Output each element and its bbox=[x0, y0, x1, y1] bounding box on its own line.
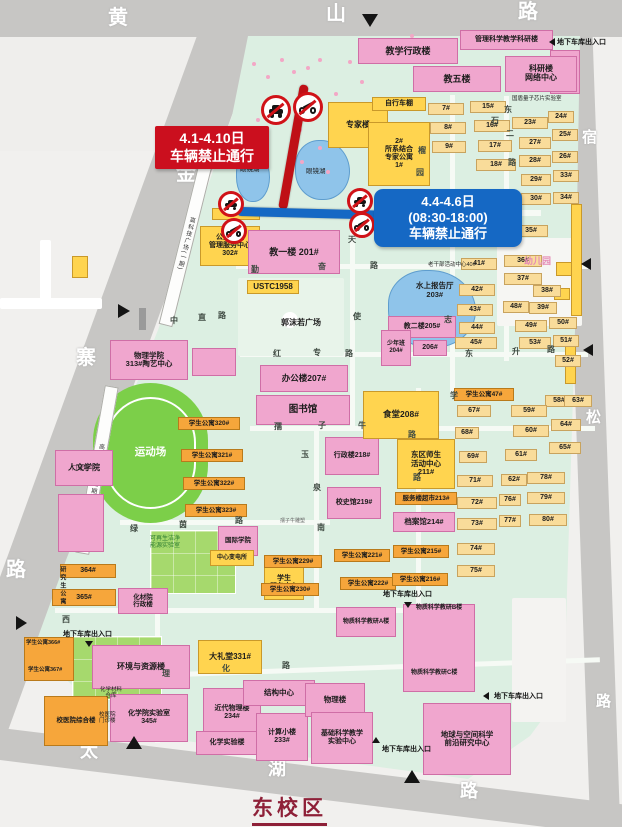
dormitory: 30# bbox=[521, 193, 551, 205]
gate-triangle-icon bbox=[483, 692, 489, 700]
cherry-blossom-dot bbox=[300, 160, 304, 164]
road-name-char: 路 bbox=[408, 431, 416, 439]
boundary-road-name-char: 山 bbox=[326, 4, 346, 24]
building: 计算小楼 233# bbox=[256, 713, 308, 761]
dormitory: 69# bbox=[459, 451, 487, 463]
dormitory: 37# bbox=[504, 273, 542, 285]
map-label: 物质科学教研C楼 bbox=[411, 670, 457, 677]
dormitory: 17# bbox=[478, 140, 512, 152]
dormitory: 28# bbox=[519, 155, 551, 167]
building-unlabeled bbox=[139, 308, 146, 330]
road-name-char: 二 bbox=[506, 130, 514, 138]
boundary-road-name-char: 湖 bbox=[268, 760, 286, 778]
no-motorcycle-sign-icon bbox=[293, 92, 323, 122]
building: 化学院实验室 345# bbox=[110, 694, 188, 742]
road-name-char: 路 bbox=[235, 517, 243, 525]
sign-part bbox=[278, 113, 282, 117]
building: 校史馆219# bbox=[327, 487, 381, 519]
sign-part bbox=[310, 107, 316, 113]
dormitory: 44# bbox=[459, 322, 495, 334]
cherry-blossom-dot bbox=[334, 92, 338, 96]
building: 大礼堂331# bbox=[198, 640, 262, 674]
road-name-char: 石 bbox=[491, 117, 499, 125]
building: 行政楼218# bbox=[325, 437, 379, 475]
road-name-char: 南 bbox=[317, 524, 325, 532]
dormitory: 34# bbox=[553, 192, 579, 204]
dormitory: 29# bbox=[521, 174, 551, 186]
map-label: 幼儿园 bbox=[524, 256, 551, 266]
road-name-char: 使 bbox=[353, 313, 361, 321]
dormitory: 68# bbox=[455, 427, 479, 439]
no-motorcycle-sign-icon bbox=[349, 212, 375, 238]
road-name-char: 升 bbox=[512, 348, 520, 356]
building-unlabeled bbox=[58, 494, 104, 552]
gate-triangle-icon bbox=[126, 736, 142, 749]
building: 办公楼207# bbox=[260, 365, 348, 392]
cherry-blossom-dot bbox=[306, 66, 310, 70]
road-name-char: 玉 bbox=[301, 451, 309, 459]
dormitory: 51# bbox=[553, 335, 579, 347]
map-label: 校医院 门诊楼 bbox=[99, 712, 116, 725]
map-label: 门球场 bbox=[72, 466, 89, 472]
gate-triangle-icon bbox=[362, 14, 378, 27]
building: 学生公寓221# bbox=[334, 549, 390, 562]
road-name-char: 路 bbox=[547, 346, 555, 354]
building: 图书馆 bbox=[256, 395, 350, 425]
boundary-road-name-char: 路 bbox=[6, 560, 26, 580]
ground-area bbox=[512, 598, 566, 722]
dormitory: 23# bbox=[512, 117, 548, 129]
building: 364# bbox=[60, 564, 116, 578]
no-motorcycle-sign-icon bbox=[221, 218, 247, 244]
building: 学生公寓321# bbox=[181, 449, 243, 462]
boundary-road-name-char: 黄 bbox=[108, 8, 128, 28]
building: 学生公寓216# bbox=[392, 573, 448, 586]
dormitory: 15# bbox=[470, 101, 506, 113]
building: 教学行政楼 bbox=[358, 38, 458, 64]
dormitory: 59# bbox=[511, 405, 547, 417]
road-name-char: 子 bbox=[318, 422, 326, 430]
boundary-road-name-char: 宿 bbox=[582, 130, 597, 145]
cherry-blossom-dot bbox=[326, 170, 330, 174]
ground-area bbox=[40, 240, 51, 306]
building: 少年班 204# bbox=[381, 330, 411, 366]
road-name-char: 理 bbox=[162, 670, 170, 678]
dormitory: 48# bbox=[503, 301, 529, 313]
road-name-char: 勤 bbox=[251, 266, 259, 274]
dormitory: 26# bbox=[552, 151, 578, 163]
dormitory: 25# bbox=[552, 129, 578, 141]
road-name-char: 绿 bbox=[130, 525, 138, 533]
dormitory: 73# bbox=[457, 518, 497, 530]
road-name-char: 榴 bbox=[418, 147, 426, 155]
dormitory: 75# bbox=[457, 565, 495, 577]
gate-triangle-icon bbox=[549, 38, 555, 46]
gate-triangle-icon bbox=[404, 770, 420, 783]
map-label: 研究生公寓 bbox=[58, 566, 65, 606]
dormitory: 7# bbox=[428, 103, 464, 115]
road-name-char: 路 bbox=[218, 312, 226, 320]
building: 学生公寓320# bbox=[178, 417, 240, 430]
notice-blue: 4.4-4.6日(08:30-18:00)车辆禁止通行 bbox=[374, 189, 522, 247]
building: 学生公寓47# bbox=[454, 388, 514, 401]
cherry-blossom-dot bbox=[360, 80, 364, 84]
building: 化材院 行政楼 bbox=[118, 588, 168, 614]
boundary-road-name-char: 路 bbox=[596, 694, 611, 709]
building: 档案馆214# bbox=[393, 512, 455, 532]
dormitory: 77# bbox=[499, 515, 521, 527]
gate-triangle-icon bbox=[16, 616, 27, 630]
map-label: 老干部活动中心40# bbox=[428, 262, 476, 268]
road-name-char: 西 bbox=[62, 616, 70, 624]
boundary-road-name-char: 松 bbox=[586, 410, 601, 425]
map-label: 化学材料 仓库 bbox=[100, 687, 122, 700]
notice-line: (08:30-18:00) bbox=[374, 210, 522, 226]
notice-red: 4.1-4.10日车辆禁止通行 bbox=[155, 126, 269, 169]
building: 教一楼 201# bbox=[248, 230, 340, 274]
dormitory: 64# bbox=[551, 419, 581, 431]
road-name-char: 路 bbox=[282, 662, 290, 670]
building: 物质科学教研A楼 bbox=[336, 607, 396, 637]
building: 学生公寓230# bbox=[261, 583, 319, 596]
dormitory: 63# bbox=[564, 395, 592, 407]
boundary-road-name-char: 路 bbox=[518, 2, 538, 22]
sign-part bbox=[364, 225, 369, 230]
cherry-blossom-dot bbox=[256, 118, 260, 122]
map-label: 郭沫若广场 bbox=[281, 318, 321, 327]
building: 自行车棚 bbox=[372, 97, 426, 111]
dormitory: 80# bbox=[529, 514, 567, 526]
building: 教五楼 bbox=[413, 66, 501, 92]
notice-line: 车辆禁止通行 bbox=[155, 148, 269, 166]
road-name-char: 园 bbox=[416, 169, 424, 177]
road-name-char: 东 bbox=[504, 106, 512, 114]
cherry-blossom-dot bbox=[266, 75, 270, 79]
road-name-char: 化 bbox=[222, 665, 230, 673]
building: 东区师生 活动中心 211# bbox=[397, 439, 455, 489]
road-name-char: 专 bbox=[313, 349, 321, 357]
campus-map: 东校区 黄山路金寨路太湖路宿松路运动场高科技广场(一期)高科技广场(二期)教学行… bbox=[0, 0, 622, 827]
building: 基础科学教学 实验中心 bbox=[311, 712, 373, 764]
map-label: 学生公寓366# bbox=[26, 640, 60, 646]
road-name-char: 东 bbox=[465, 350, 473, 358]
notice-line: 4.4-4.6日 bbox=[374, 194, 522, 210]
road-name-char: 天 bbox=[348, 236, 356, 244]
road-name-char: 中 bbox=[170, 317, 178, 325]
garage-entrance-label: 地下车库出入口 bbox=[557, 37, 606, 47]
road-name-char: 泉 bbox=[313, 484, 321, 492]
cherry-blossom-dot bbox=[292, 70, 296, 74]
dormitory: 72# bbox=[457, 497, 497, 509]
building-unlabeled bbox=[72, 256, 88, 278]
stadium-label: 运动场 bbox=[129, 446, 173, 458]
dormitory: 67# bbox=[457, 405, 491, 417]
garage-entrance-label: 地下车库出入口 bbox=[63, 629, 112, 639]
road-name-char: 直 bbox=[198, 314, 206, 322]
cherry-blossom-dot bbox=[280, 58, 284, 62]
road-name-char: 孺 bbox=[274, 423, 282, 431]
building: 学生公寓229# bbox=[264, 555, 322, 568]
cherry-blossom-dot bbox=[252, 62, 256, 66]
road-name-char: 志 bbox=[444, 316, 452, 324]
map-title: 东校区 bbox=[252, 792, 327, 826]
road-name-char: 路 bbox=[508, 159, 516, 167]
dormitory: 65# bbox=[549, 442, 581, 454]
building: 化学实验楼 bbox=[196, 731, 258, 755]
building-unlabeled bbox=[192, 348, 236, 376]
road-name-char: 路 bbox=[370, 262, 378, 270]
dormitory: 62# bbox=[501, 474, 527, 486]
no-car-sign-icon bbox=[347, 188, 373, 214]
building: USTC1958 bbox=[247, 280, 299, 294]
boundary-road-name-char: 寨 bbox=[76, 348, 96, 368]
road-name-char: 茵 bbox=[179, 521, 187, 529]
dormitory: 79# bbox=[527, 492, 565, 504]
map-label: 水上报告厅 203# bbox=[416, 282, 454, 299]
road-name-char: 牛 bbox=[358, 422, 366, 430]
sign-part bbox=[362, 204, 366, 208]
road-name-char: 奋 bbox=[318, 263, 326, 271]
dormitory: 49# bbox=[515, 320, 547, 332]
dormitory: 60# bbox=[513, 425, 549, 437]
building: 管理科学教学科研楼 bbox=[460, 30, 553, 50]
dormitory: 50# bbox=[549, 317, 577, 329]
gate-triangle-icon bbox=[372, 737, 380, 743]
dormitory: 74# bbox=[457, 543, 495, 555]
building: 中心变电所 bbox=[210, 550, 254, 566]
map-label: 国盾量子芯片实验室 bbox=[512, 96, 562, 102]
gate-triangle-icon bbox=[583, 344, 593, 356]
sign-part bbox=[233, 207, 237, 211]
building: 服务楼超市213# bbox=[395, 492, 457, 505]
map-label: 学生公寓367# bbox=[28, 667, 62, 673]
notice-line: 车辆禁止通行 bbox=[374, 226, 522, 242]
building: 206# bbox=[413, 340, 447, 356]
dormitory: 61# bbox=[505, 449, 537, 461]
map-label: 眼镜湖 bbox=[306, 168, 326, 175]
dormitory: 52# bbox=[555, 355, 581, 367]
road-name-char: 路 bbox=[413, 474, 421, 482]
dormitory: 24# bbox=[548, 111, 574, 123]
dormitory: 43# bbox=[457, 304, 493, 316]
dormitory: 38# bbox=[533, 285, 561, 297]
notice-line: 4.1-4.10日 bbox=[155, 130, 269, 148]
dormitory: 45# bbox=[455, 337, 497, 349]
building: 物质科学教研B楼 bbox=[403, 604, 475, 692]
building: 食堂208# bbox=[363, 391, 439, 439]
gate-triangle-icon bbox=[581, 258, 591, 270]
map-label: 孺子牛雕塑 bbox=[280, 519, 305, 525]
cherry-blossom-dot bbox=[318, 146, 322, 150]
cherry-blossom-dot bbox=[348, 60, 352, 64]
dormitory: 76# bbox=[499, 494, 521, 506]
building: 物理学院 313#陶艺中心 bbox=[110, 340, 188, 380]
dormitory: 8# bbox=[430, 122, 466, 134]
building: 地球与空间科学 前沿研究中心 bbox=[423, 703, 511, 775]
dormitory: 71# bbox=[457, 475, 493, 487]
ground-area bbox=[0, 298, 102, 309]
building: 学生公寓322# bbox=[183, 477, 245, 490]
road-name-char: 路 bbox=[345, 350, 353, 358]
cherry-blossom-dot bbox=[318, 58, 322, 62]
road-name-char: 红 bbox=[273, 350, 281, 358]
no-car-sign-icon bbox=[261, 95, 291, 125]
garage-entrance-label: 地下车库出入口 bbox=[382, 744, 431, 754]
dormitory: 33# bbox=[553, 170, 579, 182]
gate-triangle-icon bbox=[118, 304, 130, 318]
gate-triangle-icon bbox=[85, 641, 93, 647]
gate-triangle-icon bbox=[404, 602, 412, 608]
map-label: 可再生洁净 能源实验室 bbox=[150, 536, 180, 550]
building: 环境与资源楼 bbox=[92, 645, 190, 689]
no-car-sign-icon bbox=[218, 191, 244, 217]
road-name-char: 学 bbox=[450, 392, 458, 400]
garage-entrance-label: 地下车库出入口 bbox=[383, 589, 432, 599]
dormitory: 39# bbox=[529, 302, 557, 314]
garage-entrance-label: 地下车库出入口 bbox=[494, 691, 543, 701]
dormitory: 42# bbox=[459, 284, 495, 296]
building: 科研楼 网络中心 bbox=[505, 56, 577, 92]
dormitory: 27# bbox=[519, 137, 551, 149]
sign-part bbox=[236, 231, 241, 236]
boundary-road-name-char: 路 bbox=[460, 782, 478, 800]
building: 学生公寓215# bbox=[393, 545, 449, 558]
dormitory: 9# bbox=[432, 141, 466, 153]
dormitory: 78# bbox=[527, 472, 565, 484]
